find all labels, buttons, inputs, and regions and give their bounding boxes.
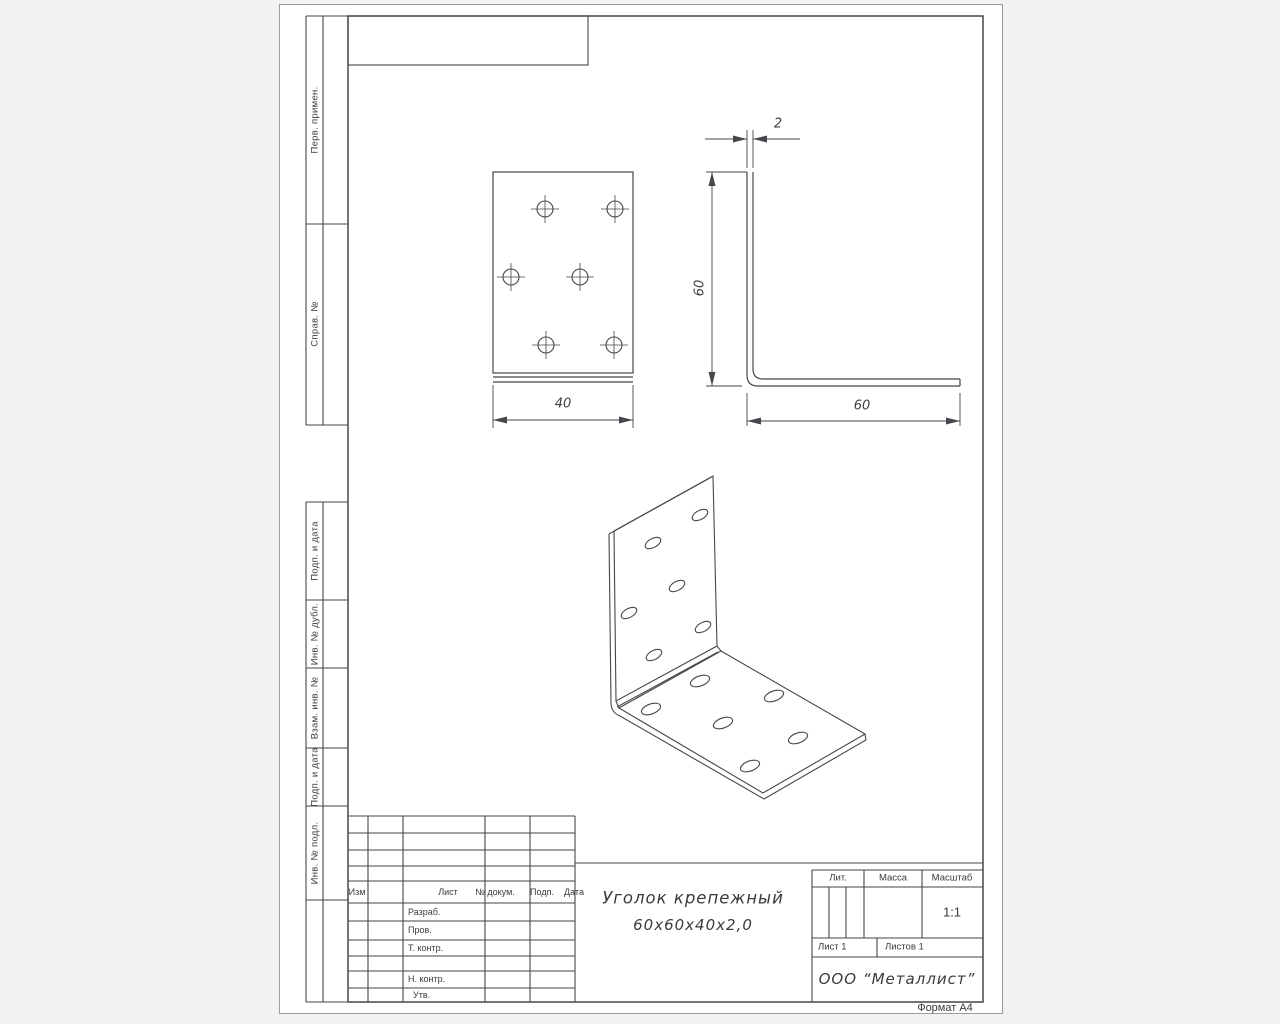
side-view bbox=[705, 130, 960, 426]
scale-value: 1:1 bbox=[943, 905, 961, 920]
margin-label-perv-primen: Перв. примен. bbox=[309, 86, 320, 153]
top-view bbox=[493, 172, 633, 428]
part-name-line1: Уголок крепежный bbox=[602, 889, 784, 908]
drawing-lines bbox=[280, 5, 1002, 1013]
tb-role-utv: Утв. bbox=[413, 990, 430, 1000]
frame bbox=[348, 16, 983, 1002]
part-name-line2: 60х60х40х2,0 bbox=[633, 916, 753, 934]
tb-header-doc: № докум. bbox=[475, 887, 515, 897]
dim-60-vertical bbox=[706, 172, 747, 386]
tb-scale-label: Масштаб bbox=[932, 873, 973, 884]
dim-2 bbox=[705, 130, 800, 168]
tb-role-t-kontr: Т. контр. bbox=[408, 943, 443, 953]
tb-sheets-label: Листов 1 bbox=[885, 942, 924, 953]
tb-header-sign: Подп. bbox=[530, 887, 554, 897]
tb-role-prov: Пров. bbox=[408, 925, 432, 935]
tb-lit-label: Лит. bbox=[829, 873, 846, 884]
margin-label-inv-no-podl: Инв. № подл. bbox=[309, 822, 320, 885]
margin-label-sprav-no: Справ. № bbox=[309, 301, 320, 347]
margin-label-vzam-inv-no: Взам. инв. № bbox=[309, 677, 320, 739]
top-reference-box bbox=[348, 16, 588, 65]
isometric-holes-vertical-face bbox=[619, 507, 712, 663]
dim-leg-length-value: 60 bbox=[854, 399, 871, 414]
margin-label-podp-i-data-1: Подп. и дата bbox=[309, 521, 320, 581]
company-name: ООО “Металлист” bbox=[819, 970, 976, 988]
dim-thickness-value: 2 bbox=[774, 117, 782, 132]
tb-role-n-kontr: Н. контр. bbox=[408, 974, 445, 984]
dim-leg-height-value: 60 bbox=[693, 280, 708, 297]
margin-label-inv-no-dubl: Инв. № дубл. bbox=[309, 603, 320, 665]
tb-header-date: Дата bbox=[564, 887, 584, 897]
margin-label-podp-i-data-2: Подп. и дата bbox=[309, 747, 320, 807]
drawing-sheet: Перв. примен. Справ. № Подп. и дата Инв.… bbox=[280, 5, 1002, 1013]
tb-role-razrab: Разраб. bbox=[408, 907, 440, 917]
format-note: Формат А4 bbox=[917, 1002, 973, 1014]
hole-centerlines bbox=[497, 195, 629, 359]
isometric-holes-bottom-face bbox=[640, 673, 809, 774]
tb-mass-label: Масса bbox=[879, 873, 907, 884]
isometric-view bbox=[609, 476, 866, 799]
tb-header-izm: Изм bbox=[349, 887, 366, 897]
screen: Перв. примен. Справ. № Подп. и дата Инв.… bbox=[0, 0, 1280, 1024]
tb-sheet-label: Лист 1 bbox=[818, 942, 847, 953]
dim-flange-width-value: 40 bbox=[555, 397, 572, 412]
tb-header-list: Лист bbox=[438, 887, 458, 897]
